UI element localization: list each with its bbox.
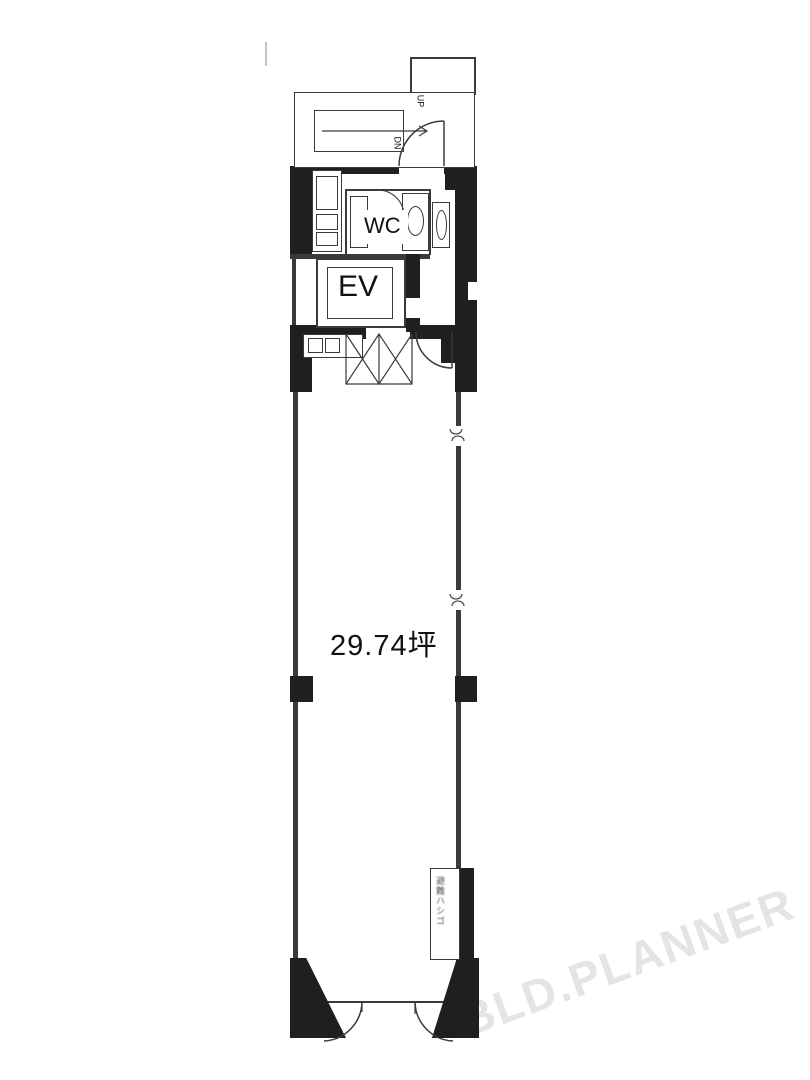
floor-plan: BLD.PLANNER UP DN WC EV	[0, 0, 810, 1080]
stair-up-label: UP	[415, 95, 425, 108]
double-door-x	[346, 334, 412, 384]
door-leaf	[362, 1002, 415, 1014]
door-swing-arc	[415, 1002, 453, 1041]
stair-down-label: DN	[393, 137, 403, 150]
area-label: 29.74坪	[330, 622, 438, 664]
escape-hatch-label: 避難ハシゴ	[434, 876, 447, 926]
door-swing-arc	[324, 1002, 362, 1041]
door-swing-arc	[416, 332, 452, 368]
linework-overlay	[0, 0, 810, 1080]
elevator-label: EV	[338, 270, 378, 304]
wc-label: WC	[364, 213, 401, 239]
wall-break-mark	[450, 429, 464, 606]
